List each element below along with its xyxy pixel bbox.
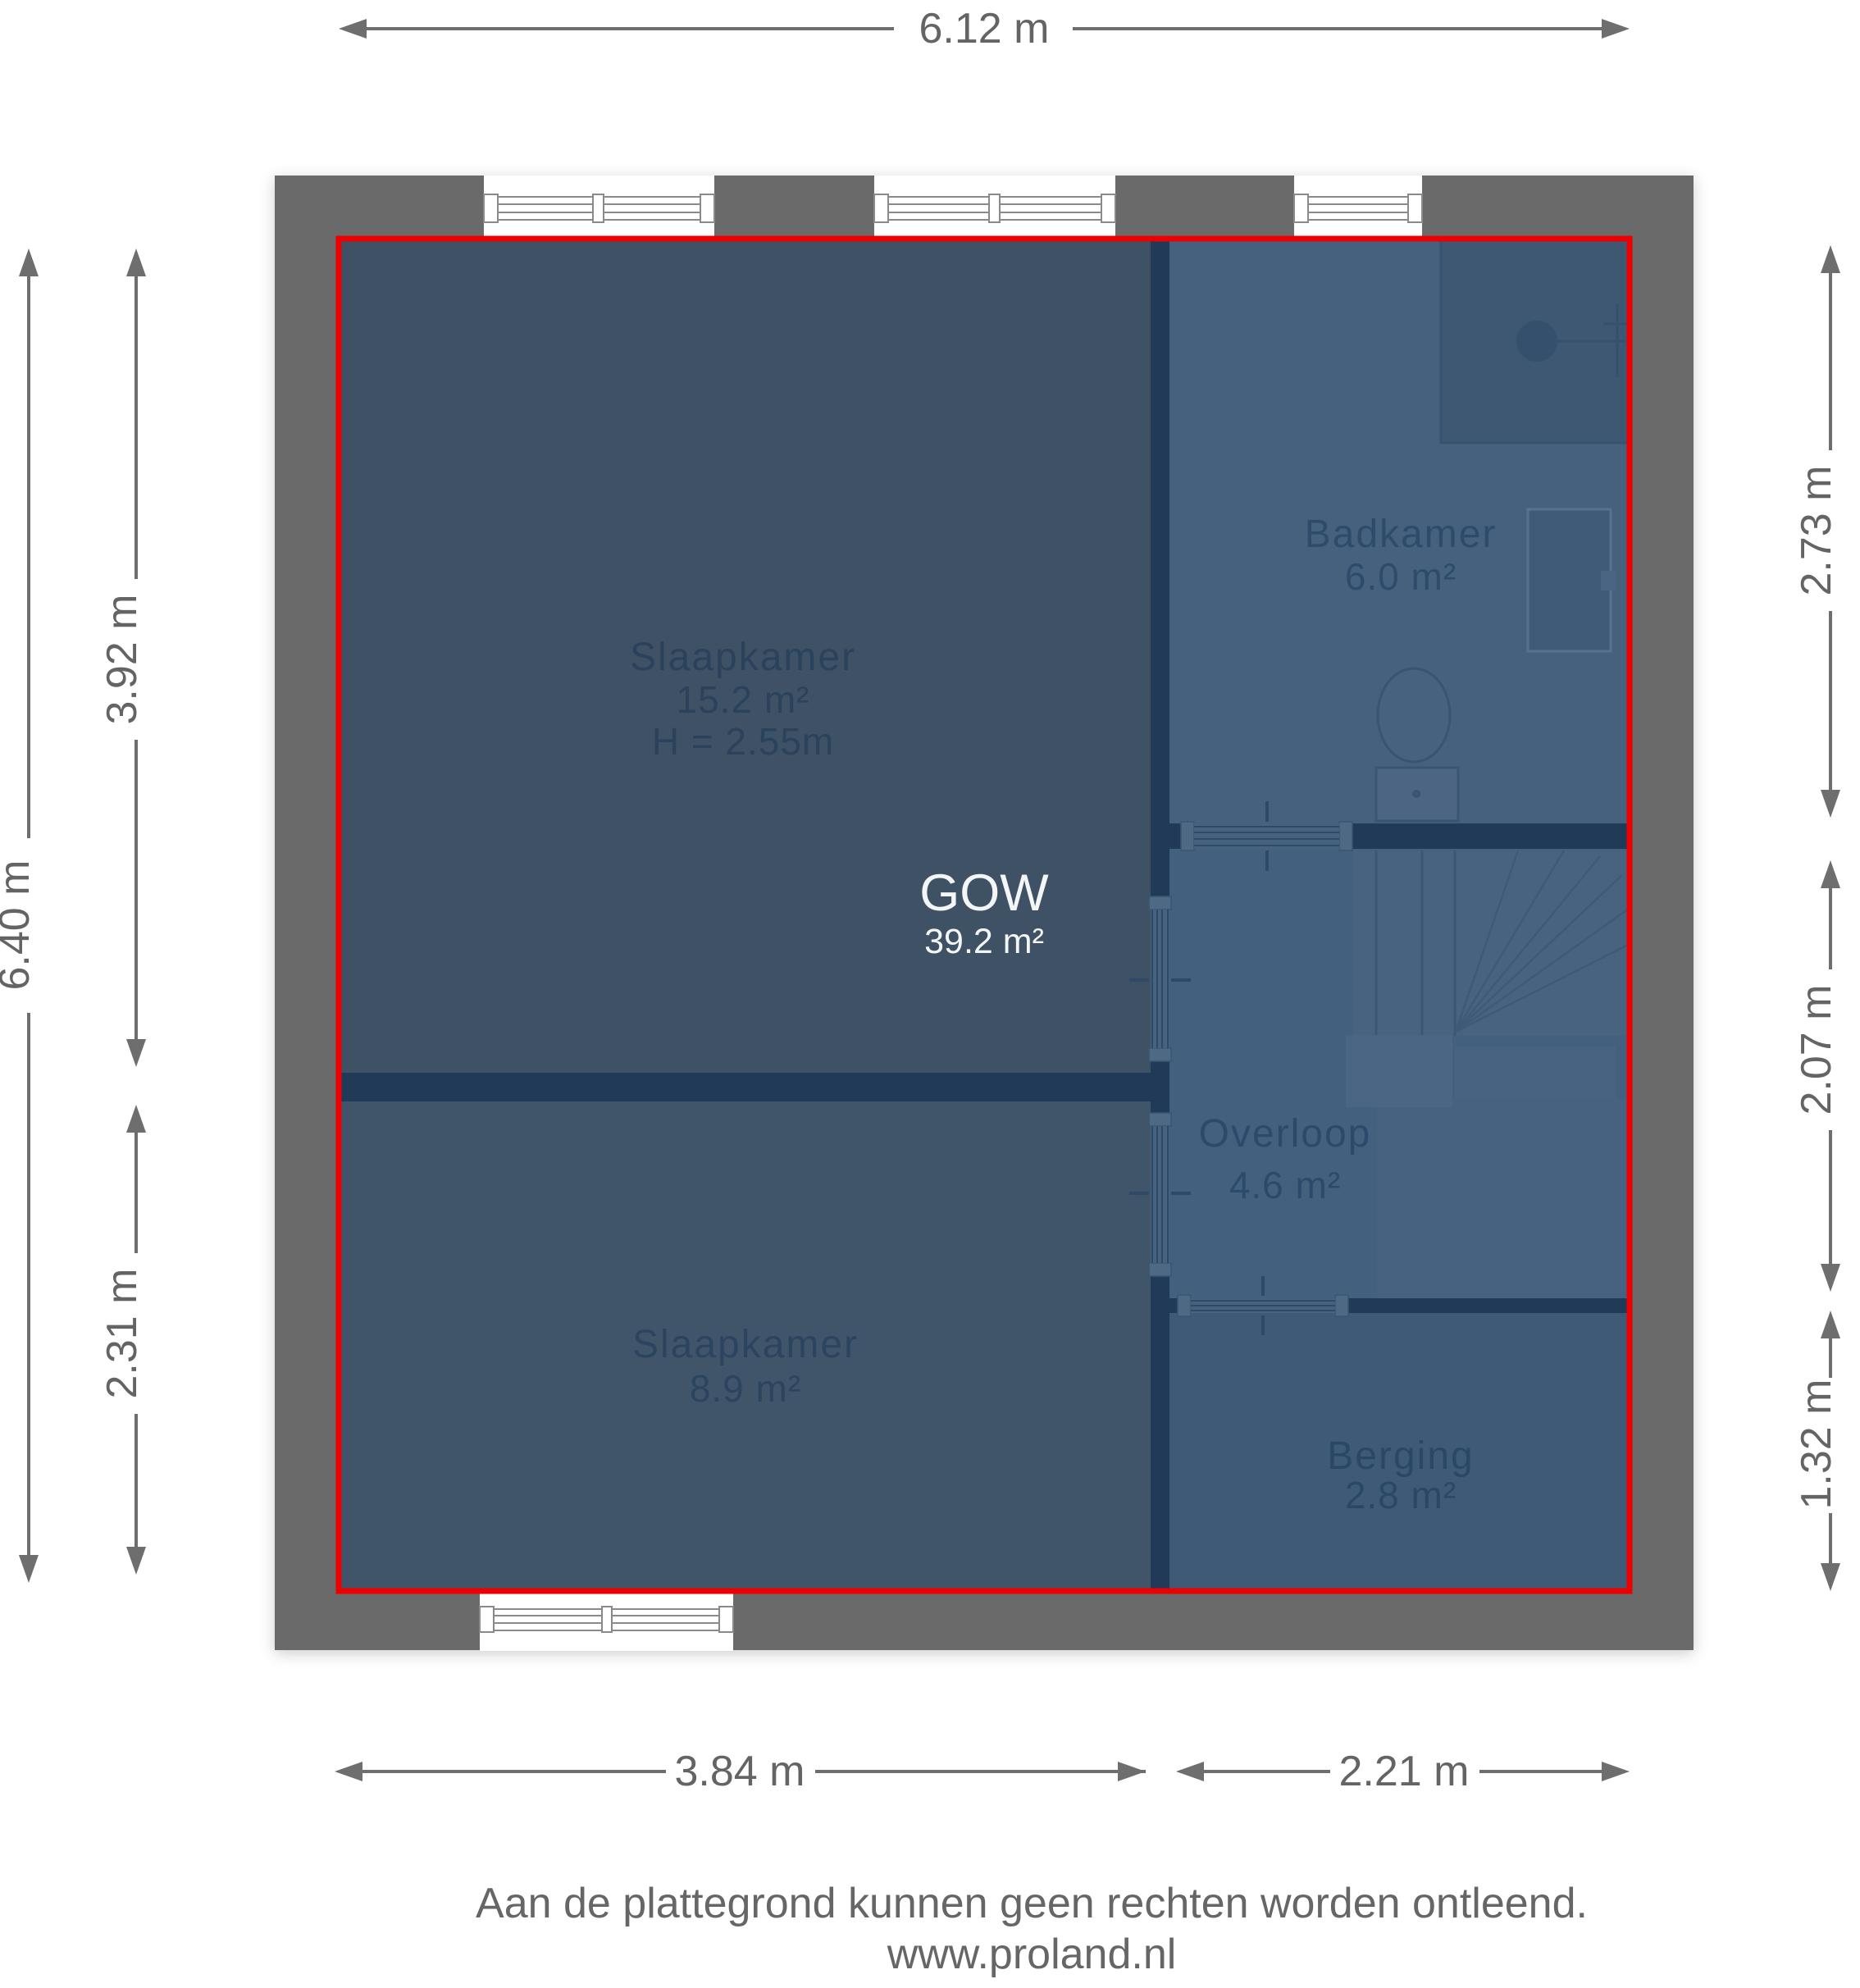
svg-text:2.07 m: 2.07 m <box>1793 985 1840 1115</box>
svg-text:15.2 m²: 15.2 m² <box>677 678 810 721</box>
svg-text:6.0 m²: 6.0 m² <box>1345 555 1457 598</box>
svg-text:2.21 m: 2.21 m <box>1339 1748 1470 1795</box>
svg-text:H = 2.55m: H = 2.55m <box>652 720 835 763</box>
svg-text:6.12 m: 6.12 m <box>919 5 1050 52</box>
svg-text:www.proland.nl: www.proland.nl <box>887 1931 1177 1978</box>
svg-text:3.92 m: 3.92 m <box>98 595 146 725</box>
svg-text:Slaapkamer: Slaapkamer <box>630 636 856 679</box>
svg-text:Badkamer: Badkamer <box>1305 513 1498 556</box>
svg-text:2.8 m²: 2.8 m² <box>1345 1474 1457 1516</box>
svg-text:39.2 m²: 39.2 m² <box>924 922 1044 961</box>
svg-text:Slaapkamer: Slaapkamer <box>632 1323 859 1366</box>
svg-text:4.6 m²: 4.6 m² <box>1229 1164 1341 1206</box>
svg-text:Overloop: Overloop <box>1199 1112 1372 1156</box>
svg-text:3.84 m: 3.84 m <box>675 1748 805 1795</box>
svg-text:2.73 m: 2.73 m <box>1793 466 1840 596</box>
svg-text:6.40 m: 6.40 m <box>0 860 39 991</box>
svg-text:Berging: Berging <box>1327 1434 1474 1478</box>
svg-text:GOW: GOW <box>919 864 1049 922</box>
svg-text:Aan de plattegrond kunnen geen: Aan de plattegrond kunnen geen rechten w… <box>476 1880 1588 1927</box>
svg-text:1.32 m: 1.32 m <box>1793 1379 1840 1510</box>
svg-text:8.9 m²: 8.9 m² <box>690 1367 801 1410</box>
svg-text:2.31 m: 2.31 m <box>98 1269 146 1399</box>
